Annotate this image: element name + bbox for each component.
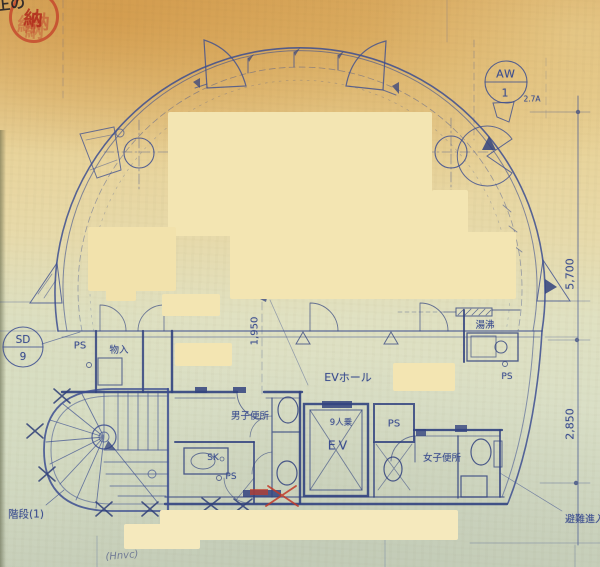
sd-mark-bottom-label: 9 bbox=[20, 351, 27, 363]
note-evacuation: 避難進入 bbox=[565, 511, 600, 526]
label-womens-toilet: 女子便所 bbox=[423, 450, 461, 464]
redaction-patch bbox=[124, 524, 200, 549]
label-storage: 物入 bbox=[109, 342, 128, 356]
sd-mark-top-label: SD bbox=[16, 334, 31, 346]
spiral-staircase bbox=[44, 389, 168, 511]
blueprint-scan: AW 1 2.7A SD 9 PS 物入 EVホール 男子便所 SK PS 9人… bbox=[0, 0, 600, 567]
redaction-patch bbox=[393, 363, 455, 391]
aw-window-mark bbox=[474, 40, 527, 140]
label-ev-car: EV bbox=[328, 438, 350, 453]
label-ps-right: PS bbox=[501, 372, 512, 382]
sd-door-mark bbox=[3, 327, 80, 367]
redaction-patch bbox=[160, 510, 458, 540]
dimension-5700: 5,700 bbox=[564, 258, 577, 290]
label-slop-sink: SK bbox=[207, 453, 219, 463]
redaction-patch bbox=[162, 294, 220, 316]
dimension-2850: 2,850 bbox=[564, 408, 577, 440]
note-stair: 階段(1) bbox=[8, 507, 44, 522]
aw-mark-top-label: AW bbox=[496, 68, 516, 81]
label-mens-toilet: 男子便所 bbox=[231, 408, 269, 422]
label-ps-center: PS bbox=[388, 419, 400, 430]
seal-text: 納 bbox=[24, 3, 45, 31]
redaction-patch bbox=[432, 190, 468, 236]
redaction-patch bbox=[230, 232, 516, 299]
label-ev-hall: EVホール bbox=[324, 369, 371, 385]
aw-mark-note: 2.7A bbox=[523, 95, 540, 104]
label-kitchenette: 湯沸 bbox=[475, 317, 494, 331]
redaction-patch bbox=[88, 227, 176, 291]
aw-mark-bottom-label: 1 bbox=[502, 87, 509, 100]
label-ev-capacity: 9人乗 bbox=[330, 416, 352, 428]
redaction-patch bbox=[175, 343, 232, 366]
redaction-patch bbox=[168, 112, 432, 236]
dimension-1950: 1,950 bbox=[250, 317, 261, 346]
label-ps-left: PS bbox=[74, 341, 86, 352]
label-ps-mens: PS bbox=[225, 472, 236, 482]
redaction-patch bbox=[106, 289, 136, 301]
